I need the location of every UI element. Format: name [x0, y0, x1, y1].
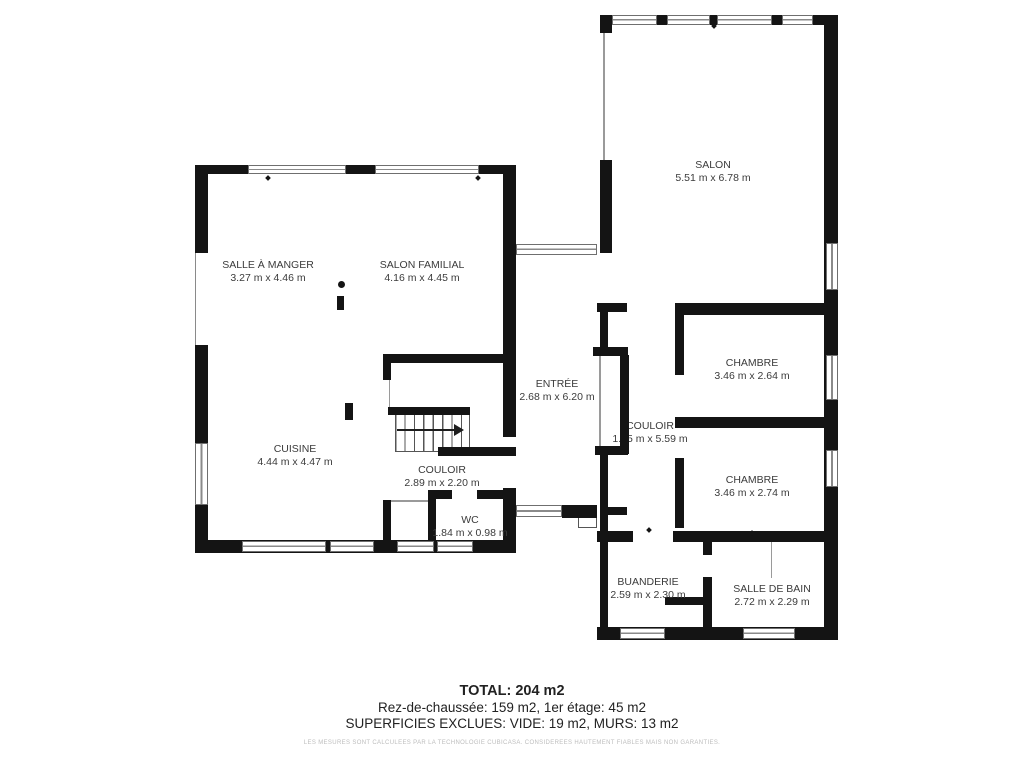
room-label-couloir-ouest: COULOIR 2.89 m x 2.20 m — [404, 464, 479, 490]
partition-line — [771, 542, 772, 578]
wall — [383, 354, 508, 363]
room-dims: 2.68 m x 6.20 m — [519, 391, 594, 404]
window — [826, 243, 838, 290]
window — [248, 165, 346, 174]
patio-door-opening — [195, 253, 209, 345]
room-name: CHAMBRE — [714, 357, 789, 370]
window — [667, 15, 710, 25]
closet-line — [391, 500, 428, 502]
wall — [675, 417, 824, 428]
door-tick — [265, 175, 271, 181]
room-name: SALON FAMILIAL — [380, 259, 465, 272]
room-label-salle-a-manger: SALLE À MANGER 3.27 m x 4.46 m — [222, 259, 314, 285]
wall — [824, 15, 838, 640]
wall — [438, 447, 516, 456]
excluded-areas: SUPERFICIES EXCLUES: VIDE: 19 m2, MURS: … — [0, 716, 1024, 732]
wall — [562, 505, 597, 518]
window — [717, 15, 772, 25]
window — [782, 15, 813, 25]
door-tick — [475, 175, 481, 181]
window — [826, 450, 838, 487]
wall — [597, 531, 633, 542]
window — [195, 443, 208, 505]
wall — [600, 507, 627, 515]
room-dims: 4.44 m x 4.47 m — [257, 456, 332, 469]
window — [397, 541, 434, 552]
wall — [388, 407, 470, 415]
wall — [600, 455, 608, 640]
wall — [595, 446, 628, 455]
room-name: BUANDERIE — [610, 576, 685, 589]
closet-line — [599, 356, 601, 446]
column — [337, 296, 344, 310]
room-name: COULOIR — [404, 464, 479, 477]
wall — [600, 160, 612, 253]
floor-areas: Rez-de-chaussée: 159 m2, 1er étage: 45 m… — [0, 700, 1024, 716]
room-label-salon: SALON 5.51 m x 6.78 m — [675, 159, 750, 185]
total-area: TOTAL: 204 m2 — [0, 683, 1024, 700]
wall — [675, 303, 684, 375]
window — [242, 541, 326, 552]
room-dims: 2.59 m x 2.30 m — [610, 589, 685, 602]
stair-direction-arrow — [397, 429, 455, 431]
window — [612, 15, 657, 25]
room-dims: 5.51 m x 6.78 m — [675, 172, 750, 185]
wall — [503, 165, 516, 437]
room-name: CHAMBRE — [714, 474, 789, 487]
column — [338, 281, 345, 288]
wall — [675, 458, 684, 528]
room-label-buanderie: BUANDERIE 2.59 m x 2.30 m — [610, 576, 685, 602]
window — [330, 541, 374, 552]
wall — [383, 354, 391, 380]
wall — [703, 541, 712, 555]
floor-plan-page: SALON 5.51 m x 6.78 m SALLE À MANGER 3.2… — [0, 0, 1024, 768]
room-dims: 2.89 m x 2.20 m — [404, 477, 479, 490]
window — [620, 628, 665, 639]
room-label-salon-familial: SALON FAMILIAL 4.16 m x 4.45 m — [380, 259, 465, 285]
room-name: ENTRÉE — [519, 378, 594, 391]
window — [437, 541, 473, 552]
room-dims: 3.46 m x 2.64 m — [714, 370, 789, 383]
window — [826, 355, 838, 400]
vide-edge-line — [603, 33, 605, 160]
stair-arrow-head-icon — [454, 424, 464, 436]
column — [345, 403, 353, 420]
wall — [620, 355, 629, 454]
room-dims: 1.84 m x 0.98 m — [432, 527, 507, 540]
area-summary: TOTAL: 204 m2 Rez-de-chaussée: 159 m2, 1… — [0, 683, 1024, 746]
room-label-chambre-1: CHAMBRE 3.46 m x 2.64 m — [714, 357, 789, 383]
wall — [703, 577, 712, 640]
room-name: SALLE DE BAIN — [733, 583, 811, 596]
room-dims: 2.72 m x 2.29 m — [733, 596, 811, 609]
room-name: SALLE À MANGER — [222, 259, 314, 272]
room-label-chambre-2: CHAMBRE 3.46 m x 2.74 m — [714, 474, 789, 500]
room-name: SALON — [675, 159, 750, 172]
wall — [477, 490, 516, 499]
wall — [675, 303, 838, 315]
disclaimer-text: LES MESURES SONT CALCULEES PAR LA TECHNO… — [0, 740, 1024, 746]
wall — [600, 311, 608, 351]
room-label-wc: WC 1.84 m x 0.98 m — [432, 514, 507, 540]
window — [743, 628, 795, 639]
window — [516, 505, 562, 517]
window — [516, 244, 597, 255]
room-label-cuisine: CUISINE 4.44 m x 4.47 m — [257, 443, 332, 469]
room-name: WC — [432, 514, 507, 527]
room-name: CUISINE — [257, 443, 332, 456]
room-label-salle-de-bain: SALLE DE BAIN 2.72 m x 2.29 m — [733, 583, 811, 609]
window — [375, 165, 479, 174]
door-tick — [646, 527, 652, 533]
room-dims: 3.27 m x 4.46 m — [222, 272, 314, 285]
room-label-entree: ENTRÉE 2.68 m x 6.20 m — [519, 378, 594, 404]
wall — [600, 15, 612, 33]
room-dims: 4.16 m x 4.45 m — [380, 272, 465, 285]
room-dims: 3.46 m x 2.74 m — [714, 487, 789, 500]
wall — [383, 500, 391, 553]
